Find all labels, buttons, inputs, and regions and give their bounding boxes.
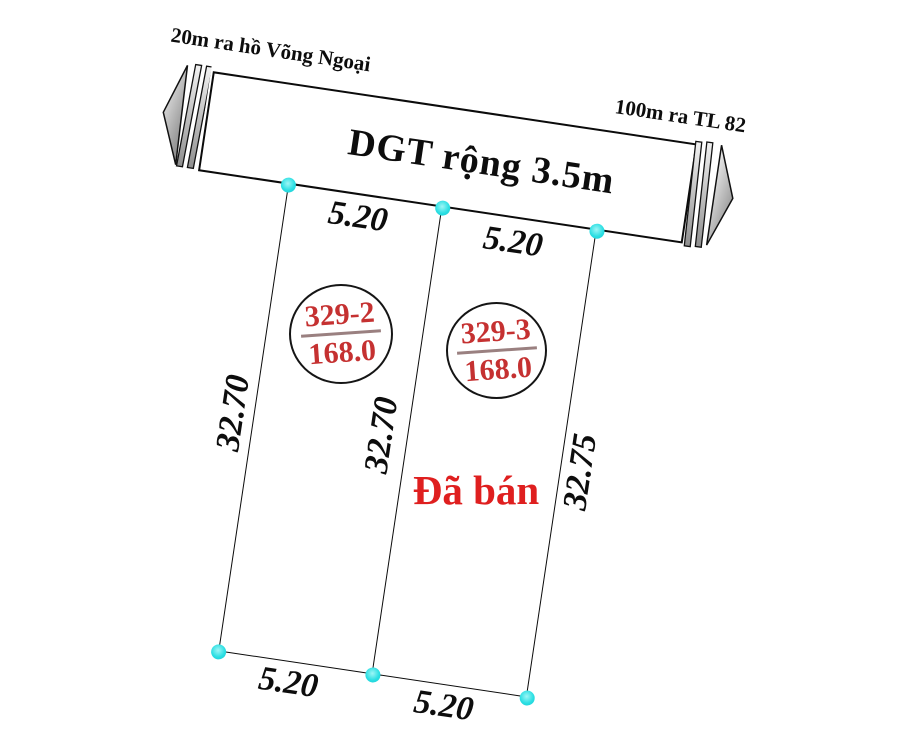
parcel-329-2-number: 329-2 (299, 297, 381, 338)
parcel-329-3-area: 168.0 (463, 349, 533, 388)
parcel-329-3-badge: 329-3 168.0 (446, 302, 547, 399)
parcel-329-2-area: 168.0 (307, 332, 377, 371)
land-plot-diagram: DGT rộng 3.5m 20m ra hồ Võng Ngoại 100m … (0, 0, 898, 745)
parcel-329-3-number: 329-3 (454, 313, 536, 354)
corner-marker (519, 689, 536, 706)
sold-status-label: Đã bán (406, 466, 546, 514)
parcel-329-2-badge: 329-2 168.0 (289, 284, 393, 384)
